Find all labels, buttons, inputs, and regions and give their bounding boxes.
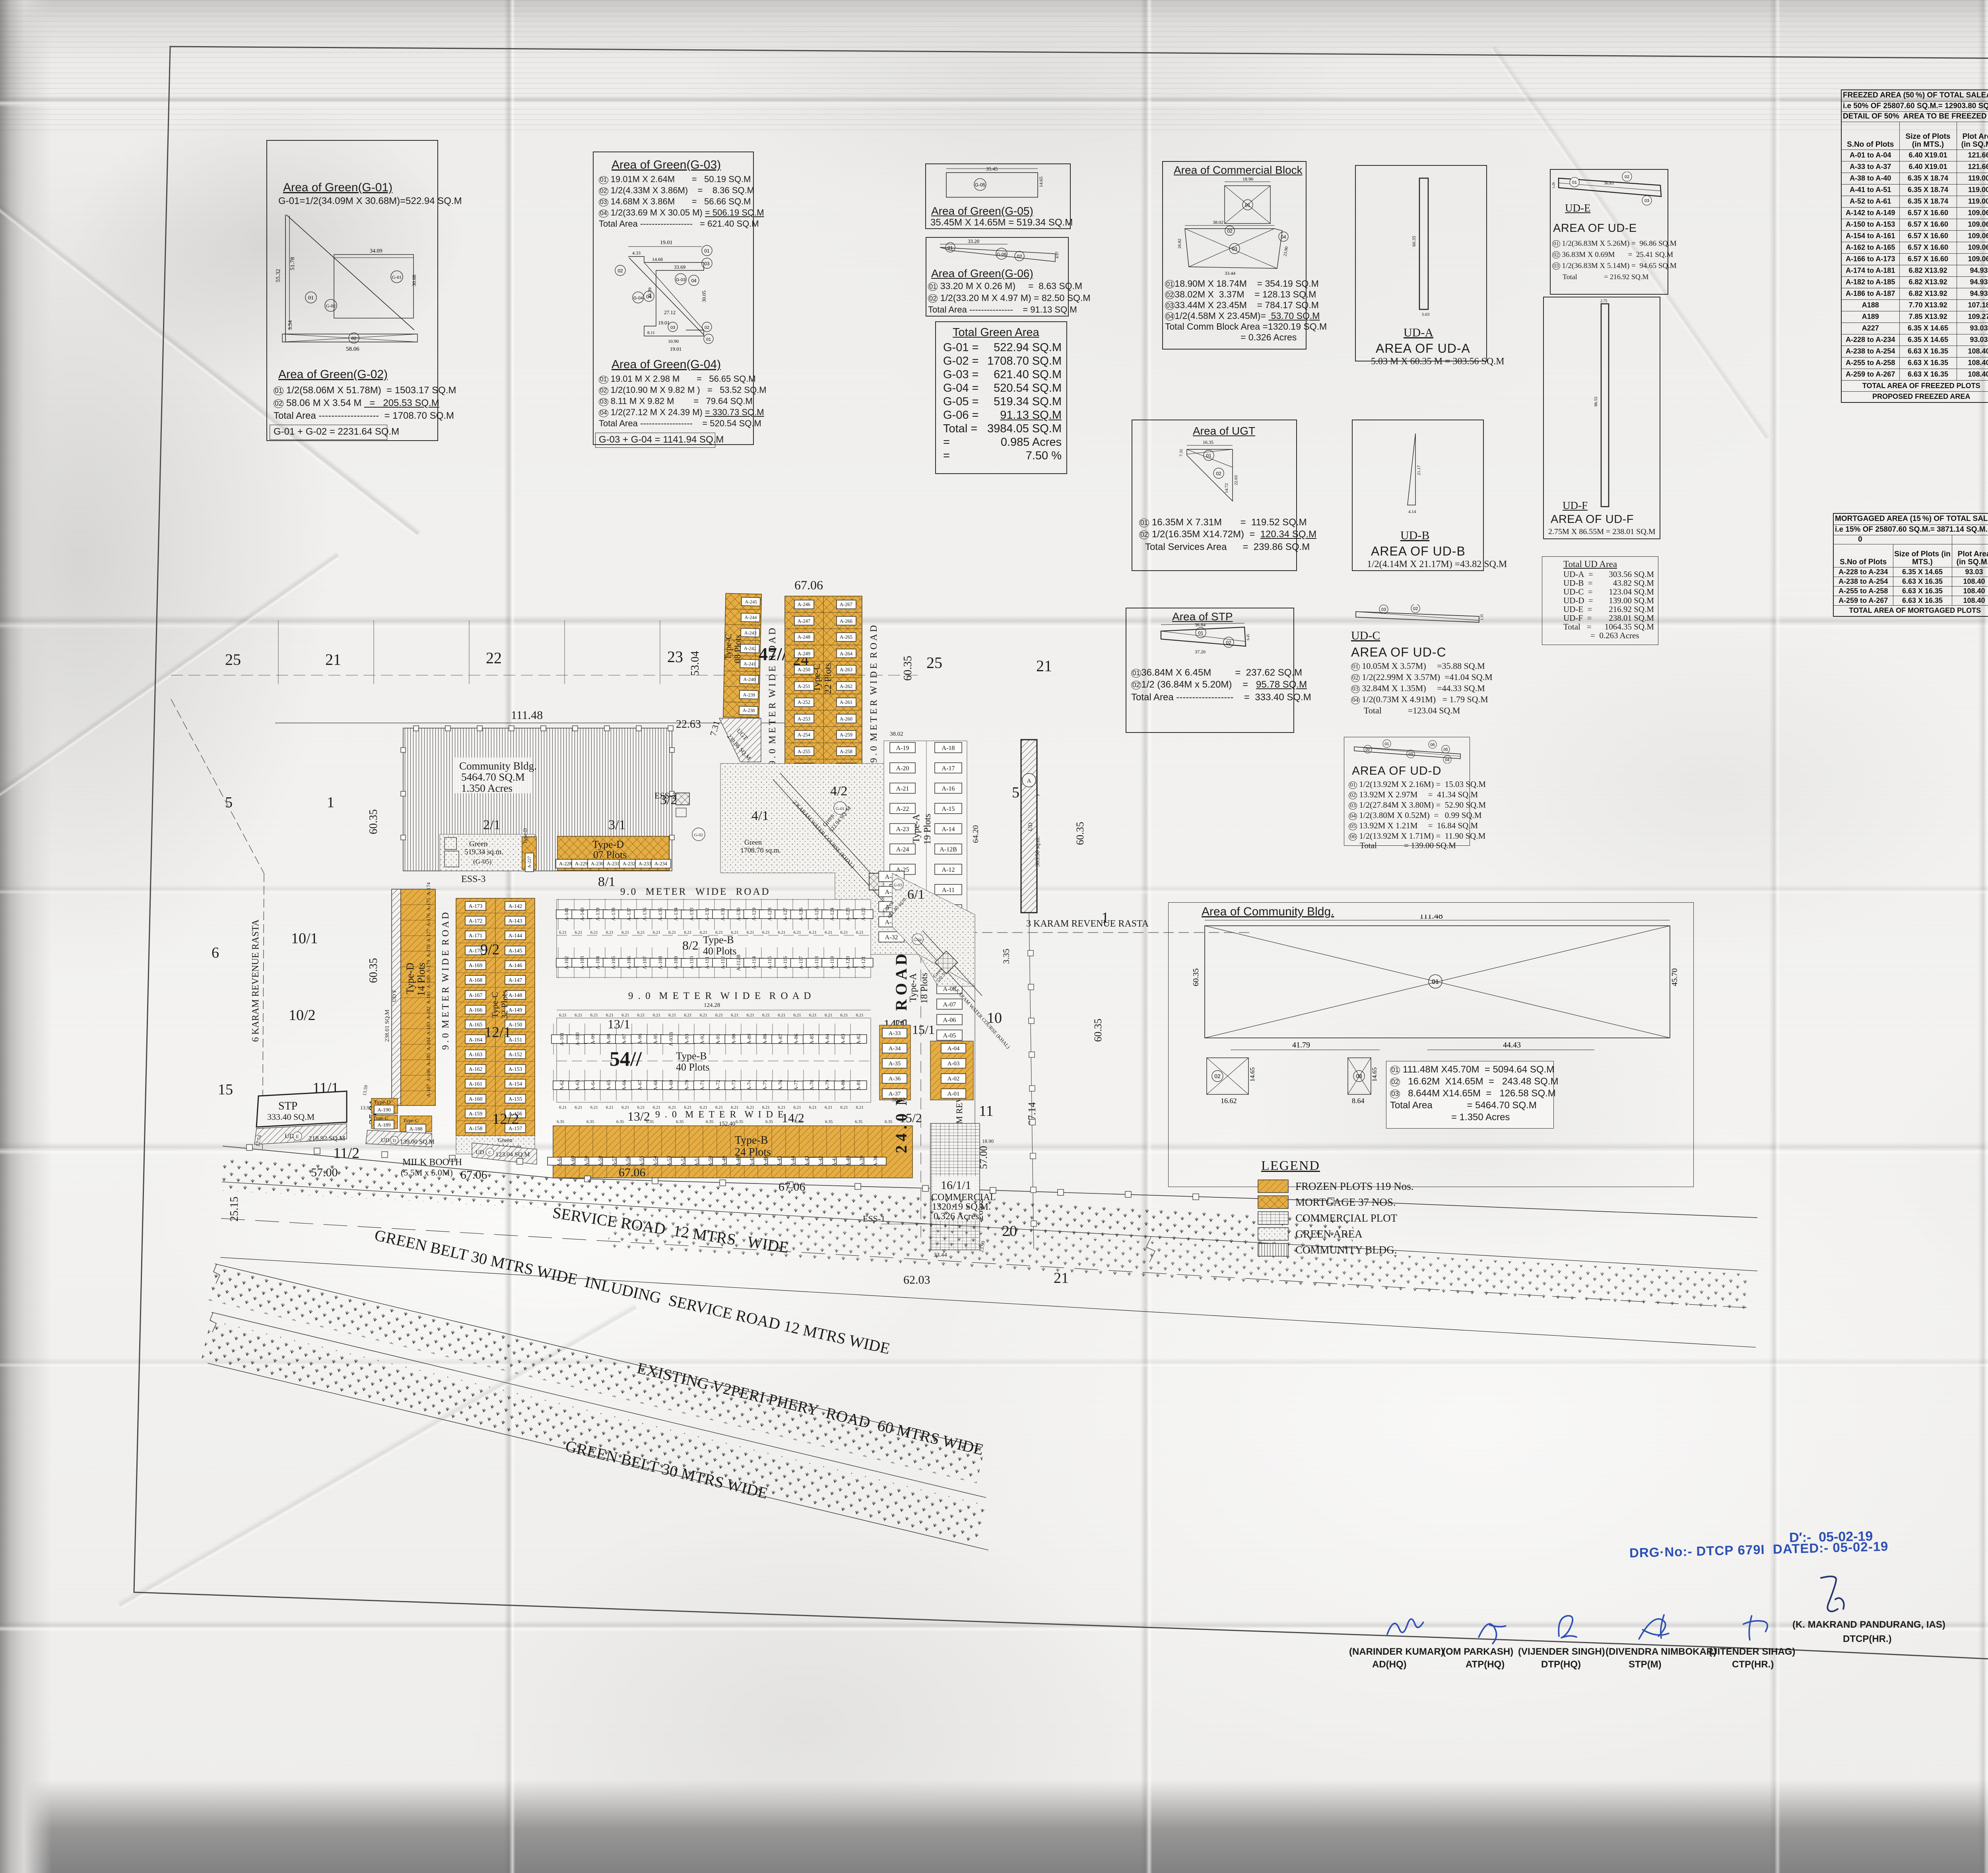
- svg-text:A-228: A-228: [559, 861, 572, 867]
- svg-text:6.21: 6.21: [809, 930, 817, 935]
- svg-text:G-02: G-02: [694, 833, 703, 837]
- svg-text:A-134: A-134: [673, 907, 679, 921]
- svg-text:6.21: 6.21: [840, 930, 848, 935]
- svg-text:A-118: A-118: [813, 956, 819, 970]
- svg-text:14.68: 14.68: [652, 256, 663, 262]
- svg-text:6.21: 6.21: [809, 1013, 817, 1018]
- svg-text:333.40 SQ.M: 333.40 SQ.M: [267, 1112, 315, 1122]
- svg-text:A-262: A-262: [840, 684, 852, 689]
- svg-text:A-137: A-137: [626, 907, 632, 921]
- svg-text:6.21: 6.21: [559, 1013, 567, 1018]
- svg-text:18 Plots: 18 Plots: [919, 973, 930, 1004]
- svg-text:A-252: A-252: [798, 699, 810, 705]
- svg-text:A-249: A-249: [798, 651, 810, 657]
- svg-text:A-174: A-174: [425, 882, 431, 896]
- svg-text:A-244: A-244: [745, 614, 757, 620]
- svg-text:6.21: 6.21: [856, 1013, 864, 1018]
- svg-text:Type-B: Type-B: [735, 1134, 768, 1146]
- svg-text:Type-B: Type-B: [676, 1050, 707, 1062]
- svg-text:111.48: 111.48: [1419, 915, 1443, 921]
- svg-text:32 Plots: 32 Plots: [499, 990, 509, 1019]
- svg-text:5: 5: [1012, 784, 1019, 801]
- svg-text:01: 01: [704, 248, 710, 254]
- svg-text:6.21: 6.21: [575, 1013, 582, 1018]
- svg-text:19.01: 19.01: [658, 320, 670, 326]
- svg-text:A-81: A-81: [856, 1080, 862, 1091]
- svg-text:G-02: G-02: [326, 303, 336, 309]
- svg-text:A-93B: A-93B: [668, 1032, 674, 1046]
- svg-text:A-97: A-97: [621, 1034, 627, 1044]
- svg-text:6.21: 6.21: [747, 1013, 754, 1018]
- svg-text:A-173: A-173: [469, 903, 483, 909]
- svg-text:19.01: 19.01: [660, 240, 673, 246]
- svg-text:A-253: A-253: [798, 716, 810, 722]
- svg-text:A-108: A-108: [657, 956, 663, 969]
- svg-text:A-190: A-190: [377, 1107, 390, 1113]
- svg-text:6: 6: [212, 944, 219, 961]
- svg-text:A-22: A-22: [896, 806, 909, 812]
- svg-text:64.20: 64.20: [971, 825, 980, 843]
- svg-text:A-96: A-96: [637, 1034, 643, 1044]
- svg-text:67.06: 67.06: [779, 1180, 806, 1193]
- svg-text:A-172: A-172: [469, 918, 483, 924]
- svg-text:A-62: A-62: [559, 1080, 565, 1091]
- svg-text:A-229: A-229: [575, 861, 588, 867]
- svg-text:6.21: 6.21: [840, 1105, 848, 1110]
- svg-text:04: 04: [1281, 234, 1286, 240]
- svg-text:A-230: A-230: [591, 861, 604, 867]
- svg-text:6.21: 6.21: [590, 1013, 598, 1018]
- svg-text:A-133: A-133: [688, 907, 694, 921]
- svg-text:A-49: A-49: [721, 1156, 727, 1167]
- svg-text:A-116: A-116: [782, 956, 788, 969]
- svg-text:06: 06: [1430, 743, 1435, 747]
- svg-text:3 KARAM REVENUE RASTA: 3 KARAM REVENUE RASTA: [1026, 919, 1149, 929]
- svg-text:A-136: A-136: [642, 907, 648, 921]
- svg-text:A-33: A-33: [889, 1030, 901, 1037]
- svg-text:A-39: A-39: [858, 1156, 864, 1167]
- svg-text:A-18: A-18: [942, 745, 955, 752]
- svg-text:60.35: 60.35: [367, 958, 380, 983]
- svg-text:6.35: 6.35: [557, 1119, 565, 1124]
- svg-text:A-162: A-162: [469, 1066, 483, 1072]
- svg-text:A-19: A-19: [896, 745, 909, 752]
- svg-text:A-21: A-21: [896, 785, 909, 792]
- svg-text:A-189: A-189: [377, 1122, 390, 1128]
- svg-text:A-240: A-240: [743, 676, 755, 682]
- svg-text:G-01: G-01: [392, 274, 402, 280]
- svg-text:123.04 SQ.M: 123.04 SQ.M: [495, 1151, 530, 1158]
- svg-text:14.65: 14.65: [1371, 1067, 1378, 1082]
- svg-text:A-103: A-103: [579, 956, 585, 969]
- svg-text:Type-A: Type-A: [908, 973, 918, 1002]
- svg-text:A-107: A-107: [642, 956, 648, 970]
- svg-text:A-24: A-24: [896, 846, 909, 853]
- svg-text:E: E: [296, 1134, 299, 1139]
- svg-text:A-23: A-23: [896, 826, 909, 833]
- svg-text:A-127: A-127: [782, 907, 788, 921]
- svg-text:36.84: 36.84: [1195, 622, 1206, 628]
- svg-text:A-227: A-227: [526, 856, 532, 868]
- svg-text:03: 03: [1381, 607, 1386, 612]
- svg-text:A-266: A-266: [840, 618, 852, 624]
- svg-text:07 Plots: 07 Plots: [593, 849, 627, 861]
- svg-text:A-158: A-158: [469, 1125, 483, 1131]
- svg-text:16.62: 16.62: [1221, 1097, 1237, 1105]
- svg-text:6.21: 6.21: [731, 930, 738, 935]
- svg-text:A-251: A-251: [798, 684, 810, 689]
- svg-text:A-02: A-02: [947, 1076, 960, 1082]
- svg-text:02: 02: [1413, 606, 1418, 611]
- svg-text:33.69: 33.69: [674, 264, 685, 270]
- svg-text:A-12B: A-12B: [940, 846, 957, 853]
- svg-text:A-168: A-168: [469, 977, 483, 983]
- svg-text:A-90: A-90: [730, 1034, 736, 1045]
- svg-text:A-51: A-51: [693, 1156, 699, 1167]
- svg-text:03: 03: [1408, 752, 1413, 757]
- svg-text:12/1: 12/1: [484, 1024, 511, 1041]
- svg-text:A-146: A-146: [509, 962, 522, 968]
- svg-text:8/2: 8/2: [682, 938, 699, 952]
- svg-text:A-86: A-86: [793, 1034, 799, 1044]
- svg-text:A-259: A-259: [840, 732, 852, 738]
- svg-text:A-232: A-232: [623, 861, 635, 867]
- svg-text:A-263: A-263: [840, 667, 852, 672]
- svg-text:21: 21: [325, 651, 341, 668]
- svg-text:A-37: A-37: [889, 1091, 901, 1097]
- svg-text:6.21: 6.21: [856, 930, 864, 935]
- svg-text:60.35: 60.35: [1092, 1019, 1104, 1042]
- svg-text:60.35: 60.35: [1411, 236, 1417, 247]
- svg-text:A-67: A-67: [637, 1080, 643, 1090]
- svg-text:A-87: A-87: [777, 1034, 783, 1044]
- svg-text:A-155: A-155: [509, 1096, 522, 1102]
- svg-text:02: 02: [1216, 471, 1221, 476]
- svg-text:A-167: A-167: [469, 992, 483, 998]
- svg-text:6.21: 6.21: [715, 1013, 723, 1018]
- svg-text:A-12: A-12: [942, 867, 955, 873]
- svg-text:10.90: 10.90: [668, 338, 679, 344]
- svg-text:124.28: 124.28: [704, 1002, 720, 1008]
- svg-text:A-104: A-104: [595, 956, 601, 970]
- svg-text:Type-A: Type-A: [911, 814, 922, 843]
- svg-text:2/1: 2/1: [483, 818, 500, 832]
- svg-text:A-159: A-159: [469, 1111, 483, 1117]
- svg-text:6.21: 6.21: [653, 1013, 660, 1018]
- svg-text:A-178: A-178: [425, 944, 431, 958]
- svg-text:6.35: 6.35: [795, 1119, 803, 1124]
- svg-text:8.11: 8.11: [647, 330, 655, 335]
- svg-text:A-89: A-89: [746, 1034, 752, 1045]
- svg-text:6.35: 6.35: [586, 1119, 594, 1124]
- svg-text:A-04: A-04: [947, 1045, 960, 1052]
- svg-text:UD: UD: [476, 1149, 484, 1156]
- svg-text:Type-D: Type-D: [522, 828, 528, 844]
- svg-text:A-248: A-248: [798, 634, 810, 640]
- svg-text:A-141: A-141: [563, 907, 569, 921]
- svg-text:A-135: A-135: [657, 907, 663, 921]
- svg-text:Type-B: Type-B: [703, 934, 734, 946]
- svg-text:A-91: A-91: [715, 1034, 721, 1045]
- svg-text:A-73: A-73: [730, 1080, 736, 1091]
- svg-text:1.35: 1.35: [1480, 614, 1484, 620]
- svg-text:A-239: A-239: [743, 692, 755, 698]
- svg-text:STP: STP: [278, 1100, 297, 1112]
- svg-text:19 Plots: 19 Plots: [922, 814, 933, 845]
- svg-text:A-55: A-55: [639, 1156, 645, 1167]
- svg-text:A-140: A-140: [579, 907, 585, 921]
- svg-text:A-152: A-152: [509, 1051, 522, 1057]
- svg-text:67.06: 67.06: [794, 578, 823, 592]
- svg-text:A-186: A-186: [425, 1068, 431, 1082]
- svg-text:A-245: A-245: [745, 599, 757, 605]
- svg-text:A-183: A-183: [425, 1022, 431, 1035]
- svg-text:6.21: 6.21: [668, 930, 676, 935]
- svg-text:A-160: A-160: [469, 1096, 483, 1102]
- svg-text:6 KARAM REVENUE RASTA: 6 KARAM REVENUE RASTA: [250, 919, 261, 1042]
- svg-text:A-112: A-112: [720, 956, 726, 970]
- svg-text:67.06: 67.06: [460, 1168, 487, 1181]
- svg-text:139.00 SQ.M: 139.00 SQ.M: [400, 1139, 435, 1145]
- svg-text:60.35: 60.35: [367, 809, 380, 834]
- svg-text:6.21: 6.21: [700, 930, 707, 935]
- svg-text:24 Plots: 24 Plots: [735, 1146, 771, 1158]
- svg-text:6.35: 6.35: [765, 1119, 773, 1124]
- svg-text:6.21: 6.21: [856, 1105, 864, 1110]
- svg-text:A-119: A-119: [829, 956, 835, 970]
- svg-text:A-52: A-52: [679, 1156, 685, 1167]
- svg-text:03: 03: [670, 325, 675, 330]
- svg-text:A-66: A-66: [621, 1080, 627, 1090]
- svg-text:A-231: A-231: [607, 861, 619, 867]
- svg-text:A-100: A-100: [574, 1032, 580, 1045]
- svg-text:G-03: G-03: [676, 278, 685, 282]
- svg-text:A-84: A-84: [824, 1034, 830, 1044]
- svg-text:18.90: 18.90: [982, 1138, 994, 1144]
- svg-text:A-93: A-93: [683, 1034, 689, 1045]
- svg-text:A-83: A-83: [840, 1034, 846, 1045]
- svg-text:A-145: A-145: [509, 948, 522, 954]
- svg-text:A-120: A-120: [845, 956, 850, 969]
- svg-text:02: 02: [1365, 748, 1370, 752]
- svg-text:A-181: A-181: [425, 991, 431, 1004]
- svg-text:A-38: A-38: [872, 1156, 878, 1167]
- svg-text:6.21: 6.21: [559, 1105, 567, 1110]
- svg-text:A-05: A-05: [943, 1032, 956, 1039]
- svg-text:Green: Green: [744, 838, 762, 846]
- svg-text:A-260: A-260: [840, 716, 852, 722]
- svg-text:A-114: A-114: [751, 956, 757, 969]
- svg-text:A-43: A-43: [804, 1156, 810, 1167]
- svg-text:G-04: G-04: [914, 938, 922, 942]
- svg-text:A-234: A-234: [654, 861, 668, 867]
- svg-text:A-147: A-147: [509, 977, 522, 983]
- svg-text:55.32: 55.32: [275, 269, 282, 282]
- svg-text:A-261: A-261: [840, 699, 852, 705]
- svg-text:ESS-2: ESS-2: [654, 791, 677, 800]
- svg-text:03: 03: [1644, 198, 1649, 203]
- svg-text:13.92: 13.92: [360, 1105, 372, 1111]
- svg-text:A-166: A-166: [469, 1007, 483, 1013]
- svg-text:9.0 METER WIDE ROAD: 9.0 METER WIDE ROAD: [620, 886, 771, 897]
- svg-text:A-171: A-171: [469, 933, 483, 938]
- svg-text:6.21: 6.21: [762, 1013, 770, 1018]
- svg-text:60.35: 60.35: [902, 656, 914, 681]
- svg-text:A-176: A-176: [425, 913, 431, 927]
- svg-text:26.82: 26.82: [1177, 239, 1182, 249]
- svg-text:A-153: A-153: [509, 1066, 522, 1072]
- svg-text:6.35: 6.35: [825, 1119, 833, 1124]
- svg-text:6.21: 6.21: [778, 1013, 785, 1018]
- svg-text:23: 23: [667, 648, 683, 666]
- svg-text:6/1: 6/1: [907, 887, 924, 902]
- svg-text:A-111: A-111: [704, 956, 710, 969]
- svg-text:A-148: A-148: [509, 992, 522, 998]
- svg-text:6.21: 6.21: [762, 930, 770, 935]
- svg-text:Type-C: Type-C: [403, 1117, 419, 1123]
- svg-text:5.03: 5.03: [1422, 312, 1430, 317]
- svg-text:A-85: A-85: [809, 1034, 815, 1045]
- svg-text:38.02: 38.02: [1213, 220, 1223, 225]
- svg-text:A-125: A-125: [813, 907, 819, 921]
- svg-text:A-121: A-121: [860, 956, 866, 969]
- svg-text:8.64: 8.64: [1352, 1097, 1365, 1105]
- svg-text:MILK BOOTH: MILK BOOTH: [402, 1157, 462, 1168]
- svg-text:4.14: 4.14: [1408, 509, 1416, 514]
- svg-text:6.21: 6.21: [794, 1105, 801, 1110]
- svg-text:21: 21: [1054, 1270, 1069, 1286]
- svg-text:G-03: G-03: [894, 883, 902, 888]
- svg-text:03: 03: [1232, 246, 1237, 252]
- svg-text:01: 01: [1245, 202, 1250, 208]
- svg-text:A-112B: A-112B: [735, 954, 741, 971]
- svg-text:22 Plots: 22 Plots: [823, 663, 833, 694]
- svg-text:15: 15: [218, 1081, 233, 1098]
- svg-text:ESS-3: ESS-3: [461, 874, 485, 884]
- svg-text:10/1: 10/1: [291, 930, 318, 947]
- svg-text:9 . 0 M E T E R W I D E R O: 9 . 0 M E T E R W I D E R O A D: [441, 912, 451, 1050]
- svg-text:A-44: A-44: [790, 1156, 796, 1166]
- svg-text:A-69: A-69: [668, 1080, 674, 1091]
- svg-text:6.21: 6.21: [684, 930, 691, 935]
- svg-text:4.33: 4.33: [632, 250, 641, 256]
- svg-text:A-154: A-154: [509, 1081, 522, 1087]
- svg-text:02: 02: [1227, 228, 1233, 234]
- svg-text:6.21: 6.21: [590, 1105, 598, 1110]
- svg-text:A-06: A-06: [943, 1017, 956, 1024]
- svg-text:A-35: A-35: [889, 1061, 901, 1067]
- svg-text:A-75: A-75: [762, 1080, 768, 1091]
- svg-text:A-179: A-179: [425, 960, 431, 973]
- svg-text:25: 25: [926, 654, 942, 672]
- svg-text:A-139: A-139: [595, 907, 601, 921]
- svg-text:02: 02: [1226, 640, 1231, 645]
- svg-text:Green: Green: [469, 840, 488, 848]
- svg-text:A-40: A-40: [845, 1156, 851, 1167]
- svg-text:A-63: A-63: [574, 1080, 580, 1091]
- svg-text:A-109: A-109: [673, 956, 679, 969]
- svg-text:A-57: A-57: [611, 1156, 617, 1166]
- svg-text:40 Plots: 40 Plots: [703, 945, 737, 957]
- svg-text:A-126: A-126: [798, 907, 804, 921]
- svg-text:A-255: A-255: [798, 749, 810, 754]
- svg-text:21: 21: [1036, 657, 1052, 675]
- svg-text:A-142: A-142: [509, 903, 522, 909]
- svg-text:02: 02: [1625, 175, 1629, 179]
- svg-text:A-16: A-16: [942, 785, 955, 792]
- svg-text:A-161: A-161: [469, 1081, 483, 1087]
- svg-text:A-132: A-132: [704, 907, 710, 921]
- svg-text:6.21: 6.21: [668, 1013, 676, 1018]
- svg-text:16/1/1: 16/1/1: [941, 1179, 971, 1192]
- svg-text:A-123: A-123: [845, 907, 850, 921]
- svg-text:7.31: 7.31: [708, 720, 722, 737]
- svg-text:A-165: A-165: [469, 1022, 483, 1028]
- svg-text:15/1: 15/1: [912, 1022, 935, 1037]
- svg-text:A-143: A-143: [509, 918, 522, 924]
- svg-text:6.21: 6.21: [794, 930, 801, 935]
- svg-text:6.21: 6.21: [809, 1105, 817, 1110]
- svg-text:6.21: 6.21: [700, 1013, 707, 1018]
- svg-text:6.21: 6.21: [731, 1013, 738, 1018]
- svg-text:01: 01: [1432, 979, 1439, 985]
- svg-text:03: 03: [704, 261, 710, 266]
- svg-text:A-14: A-14: [942, 826, 955, 833]
- svg-text:A-265: A-265: [840, 634, 852, 640]
- svg-text:4.97: 4.97: [1055, 252, 1060, 259]
- svg-text:04: 04: [646, 294, 652, 299]
- svg-text:6.21: 6.21: [575, 1105, 582, 1110]
- svg-text:3/1: 3/1: [608, 818, 625, 832]
- svg-text:5464.70 SQ.M: 5464.70 SQ.M: [461, 771, 525, 783]
- svg-text:6.21: 6.21: [794, 1013, 801, 1018]
- svg-text:1.350 Acres: 1.350 Acres: [461, 782, 513, 794]
- svg-text:9 . 0 M E T E R W I D E R O: 9 . 0 M E T E R W I D E R O A D: [767, 628, 778, 766]
- svg-text:02: 02: [1214, 1073, 1221, 1079]
- svg-text:27.12: 27.12: [664, 309, 676, 315]
- svg-text:519.34 sq.m.: 519.34 sq.m.: [464, 848, 503, 856]
- svg-text:UD: UD: [381, 1137, 390, 1144]
- svg-text:25.15: 25.15: [228, 1197, 241, 1222]
- svg-text:A-247: A-247: [798, 618, 810, 624]
- svg-text:22.03: 22.03: [1234, 475, 1239, 485]
- svg-text:14.65: 14.65: [1249, 1067, 1256, 1082]
- svg-text:1: 1: [327, 794, 334, 811]
- svg-text:54//: 54//: [610, 1048, 642, 1071]
- svg-text:238.01 SQ.M: 238.01 SQ.M: [384, 1010, 390, 1042]
- svg-text:A-131: A-131: [720, 907, 726, 921]
- svg-text:UD F: UD F: [392, 989, 398, 1002]
- svg-text:A-233: A-233: [639, 861, 651, 867]
- svg-text:A-242: A-242: [744, 645, 756, 651]
- svg-text:62.03: 62.03: [903, 1273, 930, 1286]
- svg-text:A-07: A-07: [943, 1001, 956, 1008]
- svg-text:A-115: A-115: [767, 956, 773, 970]
- svg-text:A-95: A-95: [652, 1034, 658, 1045]
- svg-text:5.26: 5.26: [1552, 182, 1555, 188]
- svg-text:6.21: 6.21: [715, 930, 723, 935]
- svg-text:6.45: 6.45: [1246, 634, 1250, 640]
- svg-text:A-254: A-254: [798, 732, 811, 738]
- svg-text:01: 01: [947, 245, 953, 251]
- svg-text:05: 05: [1443, 748, 1448, 752]
- svg-text:7.31: 7.31: [1179, 449, 1184, 457]
- svg-text:6.35: 6.35: [676, 1119, 684, 1124]
- svg-text:33.20: 33.20: [968, 239, 979, 244]
- svg-text:A-149: A-149: [509, 1007, 522, 1013]
- svg-text:A-117: A-117: [798, 956, 804, 969]
- svg-text:6.21: 6.21: [825, 1013, 832, 1018]
